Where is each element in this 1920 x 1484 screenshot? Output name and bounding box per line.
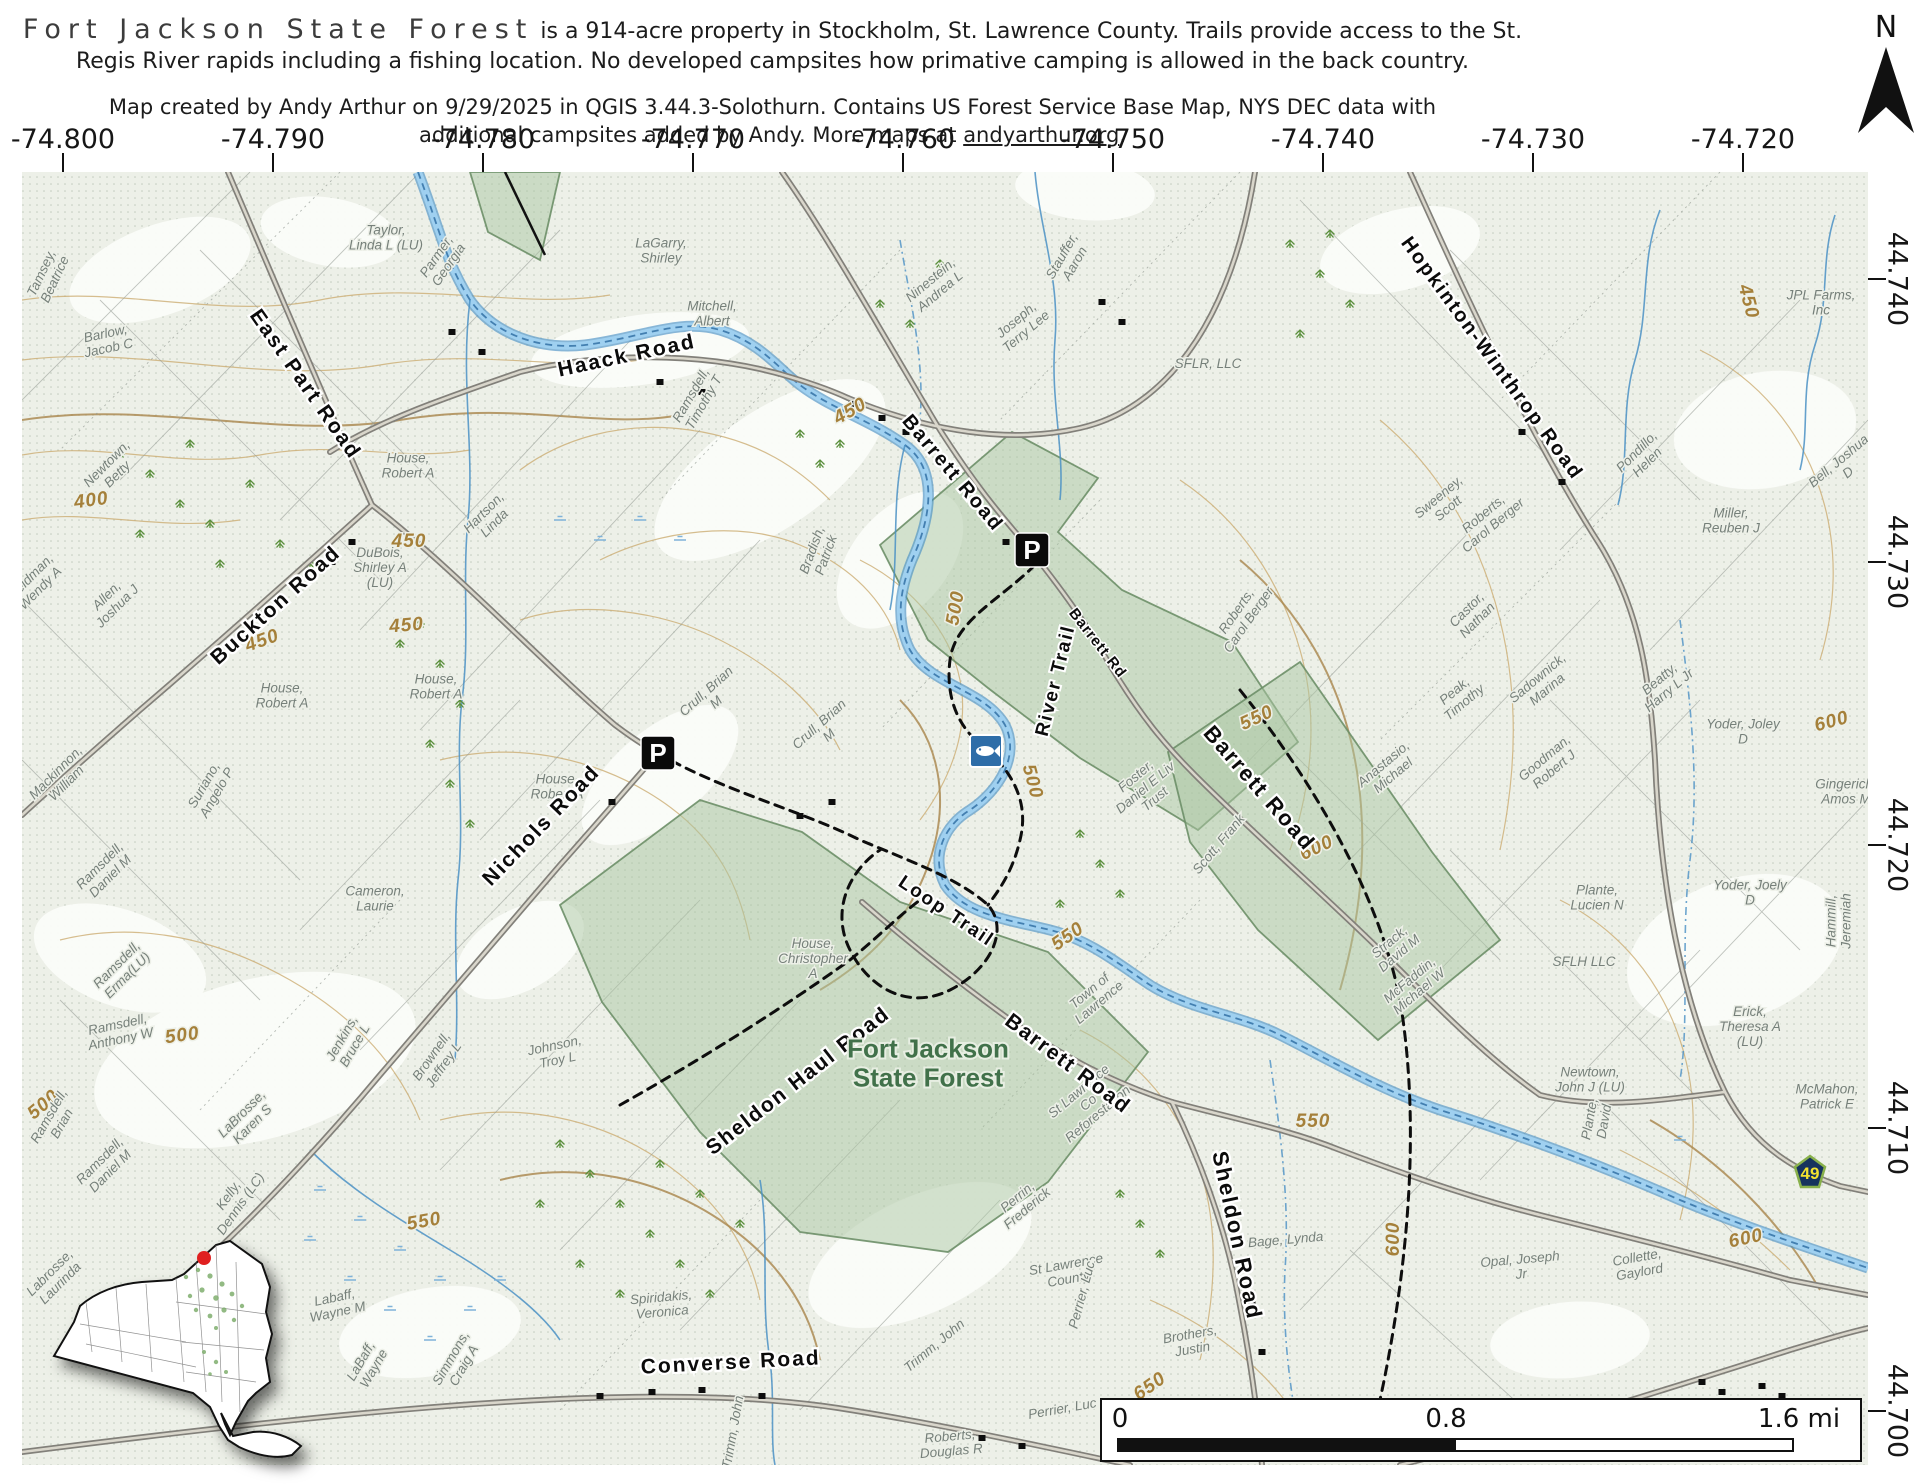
- parcel-owner-label: Plante,Lucien N: [1570, 883, 1624, 913]
- north-label: N: [1846, 10, 1920, 45]
- ny-state-inset-map: [26, 1232, 326, 1467]
- longitude-tick: [1532, 153, 1534, 172]
- longitude-label: -74.740: [1271, 124, 1375, 155]
- scale-end: 1.6 mi: [1758, 1404, 1840, 1434]
- latitude-tick: [1868, 561, 1886, 563]
- title-description: is a 914-acre property in Stockholm, St.…: [533, 19, 1522, 44]
- longitude-label: -74.790: [221, 124, 325, 155]
- svg-text:49: 49: [1801, 1164, 1820, 1183]
- north-arrow: N: [1846, 10, 1920, 144]
- parcel-owner-label: SFLH LLC: [1552, 954, 1615, 969]
- parking-icon: P: [641, 736, 675, 770]
- parcel-owner-label: House,Robert A: [382, 451, 435, 481]
- longitude-tick: [692, 153, 694, 172]
- page-title: Fort Jackson State Forest: [23, 14, 534, 45]
- parcel-owner-label: McMahon,Patrick E: [1795, 1082, 1858, 1112]
- scale-bar-track: [1117, 1438, 1794, 1452]
- longitude-label: -74.720: [1691, 124, 1795, 155]
- latitude-label: 44.700: [1882, 1364, 1913, 1458]
- scale-mid: 0.8: [1425, 1404, 1466, 1434]
- north-arrow-icon: [1846, 45, 1920, 140]
- latitude-label: 44.740: [1882, 232, 1913, 326]
- latitude-tick: [1868, 844, 1886, 846]
- fishing-icon: [970, 735, 1002, 767]
- parcel-owner-label: Newtown,John J (LU): [1554, 1065, 1625, 1095]
- parking-icon: P: [1015, 533, 1049, 567]
- longitude-tick: [1742, 153, 1744, 172]
- parcel-owner-label: Spiridakis,Veronica: [629, 1287, 694, 1322]
- latitude-tick: [1868, 1127, 1886, 1129]
- scale-bar-filled-half: [1119, 1440, 1456, 1450]
- state-forest-name-label: Fort JacksonState Forest: [847, 1034, 1009, 1093]
- longitude-label: -74.780: [431, 124, 535, 155]
- location-red-dot: [197, 1251, 211, 1265]
- parcel-owner-label: House,Robert A: [256, 681, 309, 711]
- latitude-label: 44.710: [1882, 1081, 1913, 1175]
- scale-0: 0: [1112, 1404, 1129, 1434]
- ny-state-outline: [54, 1241, 301, 1457]
- longitude-label: -74.760: [851, 124, 955, 155]
- svg-text:P: P: [1023, 535, 1040, 565]
- longitude-label: -74.800: [11, 124, 115, 155]
- parcel-owner-label: Hammill,Jeremiah: [1824, 893, 1854, 950]
- scale-bar: 0 0.8 1.6 mi: [1100, 1398, 1862, 1462]
- parcel-owner-label: Gingerich,Amos M: [1815, 777, 1868, 807]
- longitude-tick: [62, 153, 64, 172]
- longitude-tick: [272, 153, 274, 172]
- parcel-owner-label: Roberts,Douglas R: [918, 1426, 984, 1461]
- longitude-label: -74.750: [1061, 124, 1165, 155]
- longitude-tick: [1322, 153, 1324, 172]
- map-title-line: Fort Jackson State Forest is a 914-acre …: [0, 12, 1545, 48]
- longitude-label: -74.730: [1481, 124, 1585, 155]
- latitude-tick: [1868, 1410, 1886, 1412]
- title-description-line2: Regis River rapids including a fishing l…: [0, 48, 1545, 77]
- contour-elevation-label: 600: [1383, 1222, 1404, 1257]
- parcel-owner-label: SFLR, LLC: [1175, 356, 1242, 371]
- contour-elevation-label: 450: [387, 614, 424, 638]
- latitude-tick: [1868, 278, 1886, 280]
- svg-text:P: P: [649, 738, 666, 768]
- contour-elevation-label: 550: [1296, 1111, 1331, 1132]
- parcel-owner-label: Mitchell,Albert: [687, 299, 737, 329]
- latitude-label: 44.720: [1882, 798, 1913, 892]
- latitude-label: 44.730: [1882, 515, 1913, 609]
- credit-line1: Map created by Andy Arthur on 9/29/2025 …: [109, 95, 1436, 119]
- longitude-tick: [482, 153, 484, 172]
- parcel-owner-label: LaGarry,Shirley: [635, 236, 687, 266]
- map-export-page: Fort Jackson State Forest is a 914-acre …: [0, 0, 1920, 1484]
- parcel-owner-label: House,Robert A: [410, 672, 463, 702]
- longitude-tick: [902, 153, 904, 172]
- longitude-label: -74.770: [641, 124, 745, 155]
- longitude-tick: [1112, 153, 1114, 172]
